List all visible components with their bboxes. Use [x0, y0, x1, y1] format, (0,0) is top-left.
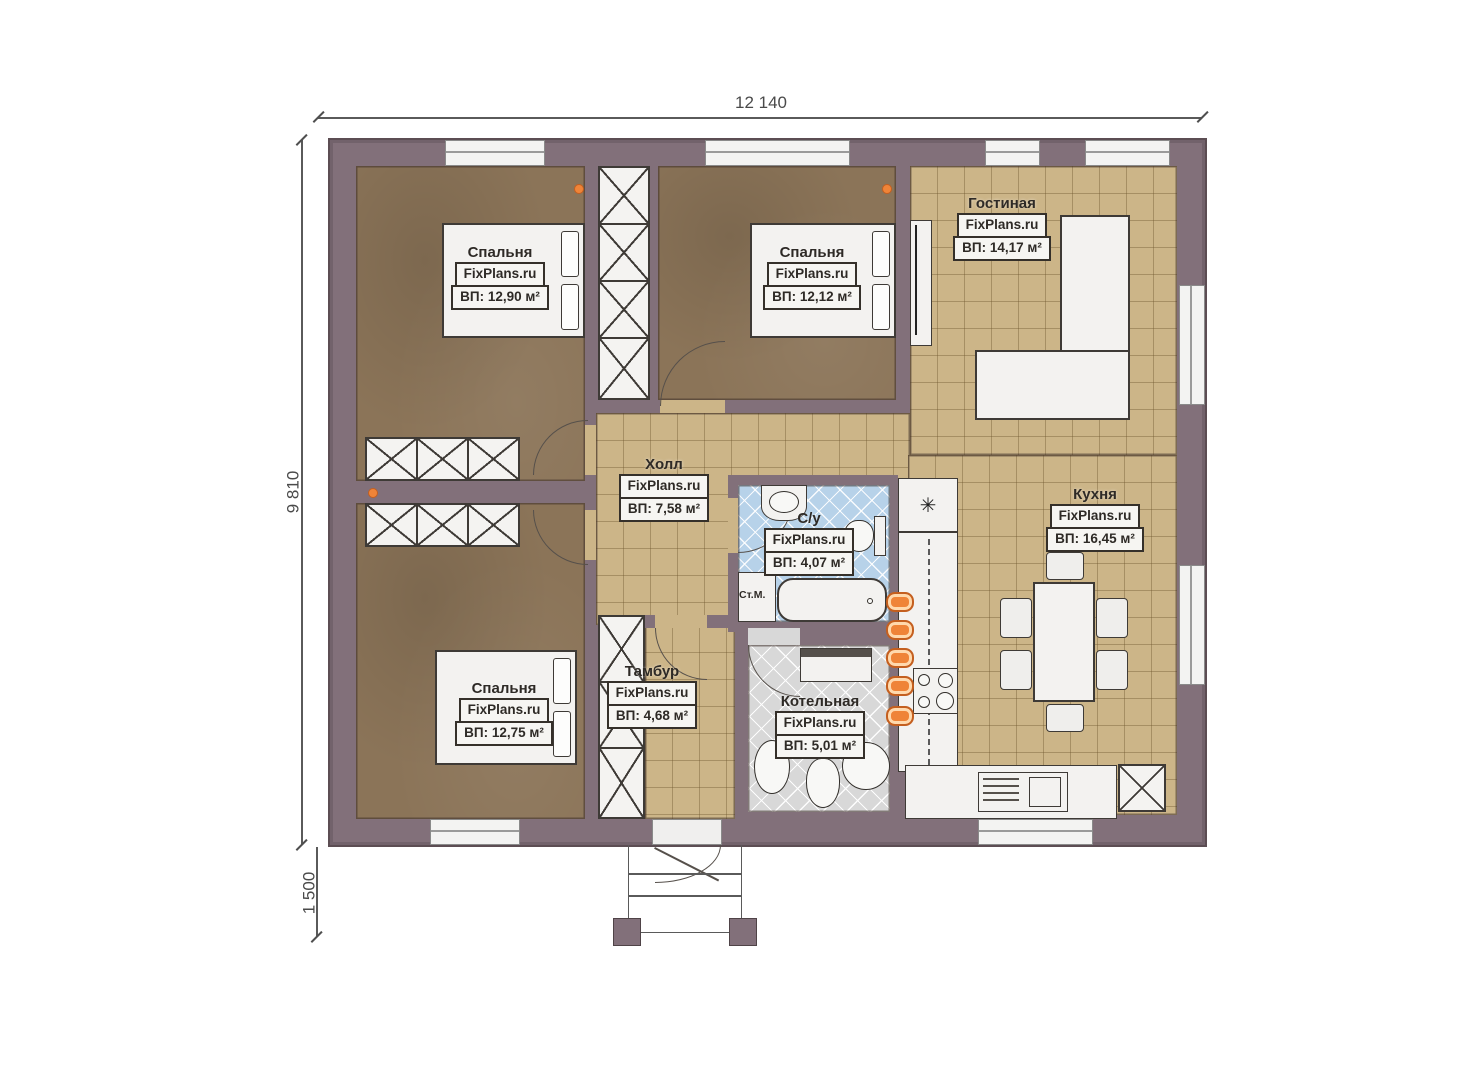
fridge-snowflake-icon: ✳ [920, 493, 937, 518]
boiler-toilet [806, 758, 840, 808]
room-label-living: Гостиная FixPlans.ru ВП: 14,17 м² [946, 195, 1058, 261]
window [1179, 285, 1205, 405]
wardrobe-cell [365, 437, 418, 481]
wardrobe-cell [598, 280, 650, 339]
chair [1000, 650, 1032, 690]
room-label-hall: Холл FixPlans.ru ВП: 7,58 м² [612, 456, 716, 522]
kitchen-sink [978, 772, 1068, 812]
window [705, 140, 850, 166]
bathtub [777, 578, 887, 622]
radiator-icon [886, 592, 914, 612]
room-brand: FixPlans.ru [764, 528, 855, 553]
tv-unit [910, 220, 932, 346]
window [445, 140, 545, 166]
room-brand: FixPlans.ru [619, 474, 710, 499]
room-name: Спальня [780, 244, 845, 261]
wardrobe-cell [365, 503, 418, 547]
wardrobe-cell [598, 223, 650, 282]
window [1085, 140, 1170, 166]
room-name: Гостиная [968, 195, 1036, 212]
window [1179, 565, 1205, 685]
room-label-bedroom-1: Спальня FixPlans.ru ВП: 12,90 м² [442, 244, 558, 310]
toilet-tank [874, 516, 886, 556]
door-opening-boiler [748, 628, 800, 645]
room-label-bedroom-2: Спальня FixPlans.ru ВП: 12,12 м² [754, 244, 870, 310]
pillow [872, 231, 890, 277]
building: Ст.М. ✳ [330, 140, 1205, 845]
door-opening-bathroom [728, 498, 738, 553]
fridge: ✳ [898, 478, 958, 532]
kitchen-counter-bottom [905, 765, 1117, 819]
room-brand: FixPlans.ru [775, 711, 866, 736]
floor-plan-canvas: 12 140 9 810 1 500 [0, 0, 1473, 1080]
dining-table [1033, 582, 1095, 702]
sink-drainboard [983, 778, 1019, 806]
room-brand: FixPlans.ru [767, 262, 858, 287]
room-name: Спальня [468, 244, 533, 261]
counter-centerline [928, 539, 930, 765]
porch-post [613, 918, 641, 946]
chair [1000, 598, 1032, 638]
entrance-door-opening [652, 819, 722, 845]
sconce-icon [368, 488, 378, 498]
room-label-vestibule: Тамбур FixPlans.ru ВП: 4,68 м² [602, 663, 702, 729]
chair [1096, 598, 1128, 638]
room-area: ВП: 7,58 м² [619, 497, 709, 522]
room-name: Котельная [781, 693, 860, 710]
pillow [872, 284, 890, 330]
room-area: ВП: 4,68 м² [607, 704, 697, 729]
appliance-panel [801, 649, 871, 657]
window [978, 819, 1093, 845]
porch-step [629, 895, 741, 897]
wardrobe-cell [416, 437, 469, 481]
dimension-line-left [301, 140, 303, 845]
chair [1046, 704, 1084, 732]
room-area: ВП: 16,45 м² [1046, 527, 1144, 552]
sofa-horizontal [975, 350, 1130, 420]
room-brand: FixPlans.ru [455, 262, 546, 287]
burner [936, 692, 954, 710]
porch-post [729, 918, 757, 946]
radiator-icon [886, 620, 914, 640]
room-area: ВП: 12,12 м² [763, 285, 861, 310]
room-brand: FixPlans.ru [1050, 504, 1141, 529]
tv-screen [915, 225, 917, 335]
wardrobe-cell [416, 503, 469, 547]
window [985, 140, 1040, 166]
room-name: Тамбур [625, 663, 679, 680]
radiator-icon [886, 706, 914, 726]
wardrobe-cell [598, 337, 650, 400]
porch [628, 845, 742, 933]
porch-step [629, 873, 741, 875]
room-area: ВП: 14,17 м² [953, 236, 1051, 261]
room-brand: FixPlans.ru [607, 681, 698, 706]
room-name: Холл [645, 456, 683, 473]
dimension-line-top [318, 117, 1202, 119]
room-area: ВП: 12,90 м² [451, 285, 549, 310]
chair [1046, 552, 1084, 580]
room-label-bathroom: С/у FixPlans.ru ВП: 4,07 м² [757, 510, 861, 576]
stove [913, 668, 958, 714]
wardrobe-cell [598, 166, 650, 225]
washing-machine-label: Ст.М. [739, 589, 765, 601]
door-opening-vestibule [655, 615, 707, 628]
chair [1096, 650, 1128, 690]
room-brand: FixPlans.ru [957, 213, 1048, 238]
radiator-icon [886, 648, 914, 668]
room-name: С/у [797, 510, 820, 527]
room-area: ВП: 5,01 м² [775, 734, 865, 759]
radiator-icon [886, 676, 914, 696]
room-name: Кухня [1073, 486, 1117, 503]
burner [918, 674, 930, 686]
pillow [561, 231, 579, 277]
room-label-boiler: Котельная FixPlans.ru ВП: 5,01 м² [770, 693, 870, 759]
room-name: Спальня [472, 680, 537, 697]
wardrobe-cell [598, 747, 645, 819]
wardrobe-cell [467, 437, 520, 481]
dimension-line-porch [316, 847, 318, 937]
room-brand: FixPlans.ru [459, 698, 550, 723]
sconce-icon [574, 184, 584, 194]
room-area: ВП: 12,75 м² [455, 721, 553, 746]
dimension-width: 12 140 [735, 93, 787, 113]
corner-cabinet [1118, 764, 1166, 812]
burner [938, 673, 953, 688]
room-area: ВП: 4,07 м² [764, 551, 854, 576]
room-label-bedroom-3: Спальня FixPlans.ru ВП: 12,75 м² [446, 680, 562, 746]
room-label-kitchen: Кухня FixPlans.ru ВП: 16,45 м² [1040, 486, 1150, 552]
sink-basin [1029, 777, 1061, 807]
bathtub-drain [867, 598, 873, 604]
burner [918, 696, 930, 708]
pillow [561, 284, 579, 330]
sconce-icon [882, 184, 892, 194]
wardrobe-cell [467, 503, 520, 547]
window [430, 819, 520, 845]
appliance [800, 648, 872, 682]
